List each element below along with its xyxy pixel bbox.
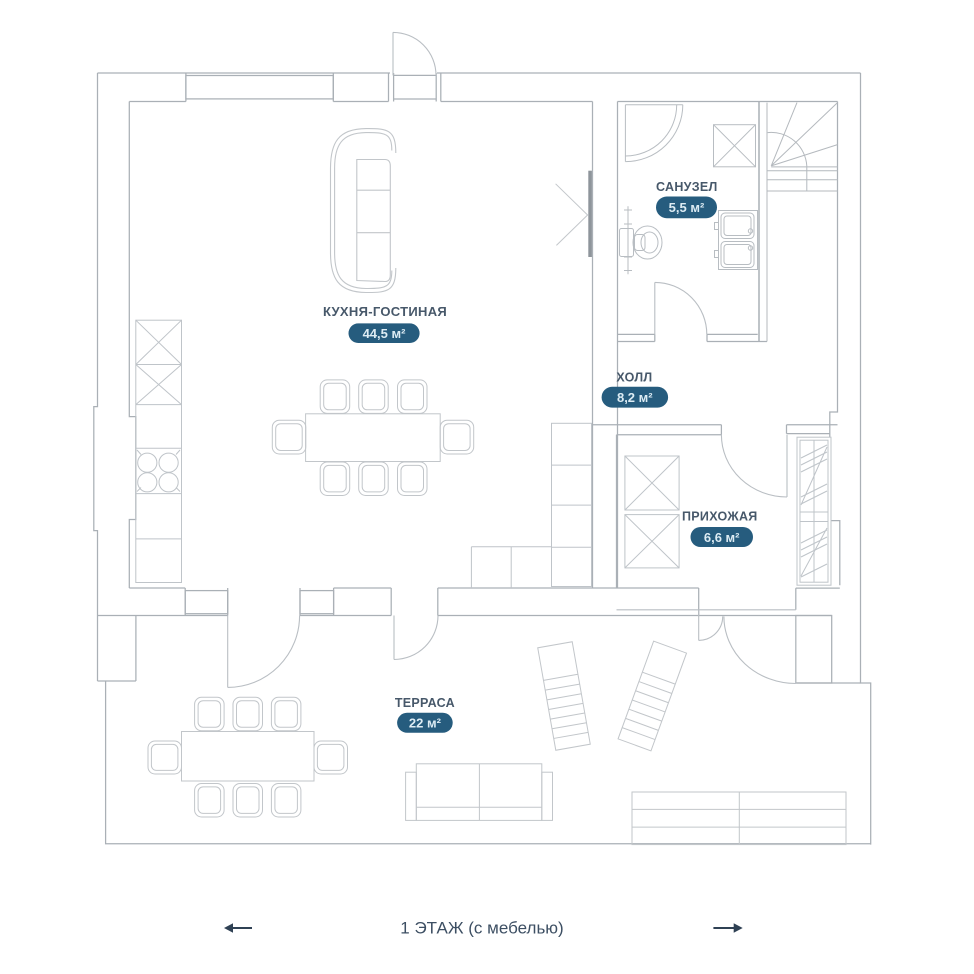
svg-text:КУХНЯ-ГОСТИНАЯ: КУХНЯ-ГОСТИНАЯ: [323, 304, 447, 319]
svg-text:1 ЭТАЖ (с мебелью): 1 ЭТАЖ (с мебелью): [400, 919, 563, 938]
svg-text:5,5 м²: 5,5 м²: [669, 200, 705, 215]
svg-text:22 м²: 22 м²: [409, 716, 442, 731]
svg-text:ПРИХОЖАЯ: ПРИХОЖАЯ: [682, 510, 758, 524]
svg-text:САНУЗЕЛ: САНУЗЕЛ: [656, 180, 718, 194]
svg-text:ХОЛЛ: ХОЛЛ: [616, 370, 652, 384]
svg-text:8,2 м²: 8,2 м²: [617, 390, 653, 405]
svg-text:ТЕРРАСА: ТЕРРАСА: [395, 696, 455, 710]
svg-text:6,6 м²: 6,6 м²: [704, 530, 740, 545]
svg-text:44,5 м²: 44,5 м²: [363, 326, 407, 341]
